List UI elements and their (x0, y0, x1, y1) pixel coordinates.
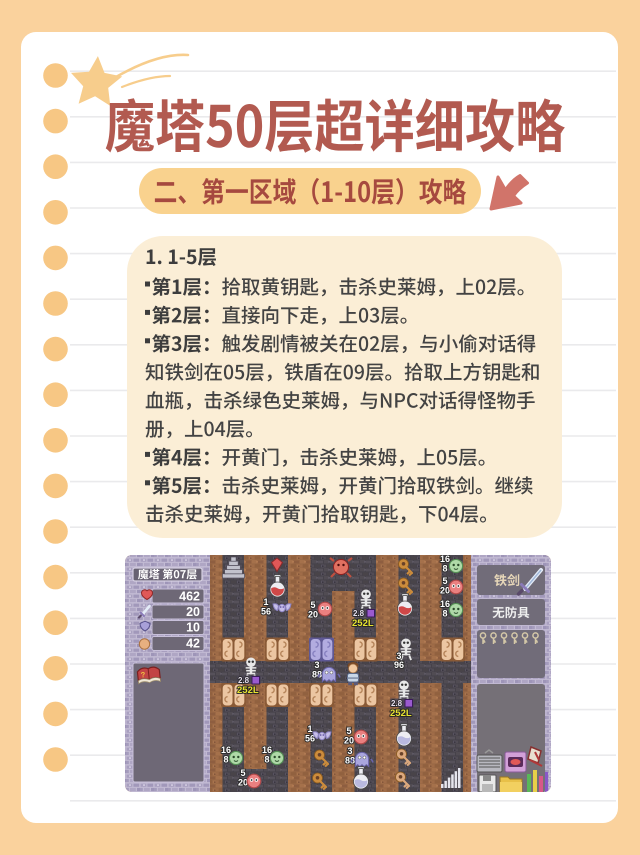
svg-text:252L: 252L (390, 708, 412, 719)
svg-text:5: 5 (442, 576, 447, 586)
svg-text:10: 10 (186, 621, 200, 635)
svg-text:2.8: 2.8 (391, 699, 403, 708)
svg-text:1: 1 (307, 724, 312, 734)
svg-text:2.8: 2.8 (238, 676, 250, 685)
svg-text:96: 96 (394, 660, 404, 670)
svg-text:462: 462 (179, 590, 200, 604)
svg-text:16: 16 (221, 745, 231, 755)
svg-text:2.8: 2.8 (353, 609, 365, 618)
svg-text:20: 20 (440, 586, 450, 596)
svg-text:8: 8 (223, 755, 228, 765)
svg-text:16: 16 (440, 554, 450, 564)
svg-text:8: 8 (442, 564, 447, 574)
svg-text:20: 20 (344, 736, 354, 746)
svg-text:56: 56 (261, 607, 271, 617)
svg-text:8: 8 (442, 609, 447, 619)
svg-text:42: 42 (186, 637, 200, 651)
svg-text:3: 3 (314, 660, 319, 670)
svg-text:8: 8 (264, 755, 269, 765)
svg-text:16: 16 (440, 599, 450, 609)
svg-text:3: 3 (347, 746, 352, 756)
svg-text:20: 20 (308, 610, 318, 620)
svg-text:88: 88 (345, 756, 355, 766)
svg-text:5: 5 (240, 768, 245, 778)
svg-text:20: 20 (186, 605, 200, 619)
svg-text:5: 5 (310, 600, 315, 610)
svg-text:252L: 252L (237, 685, 259, 696)
svg-text:16: 16 (262, 745, 272, 755)
svg-text:1: 1 (263, 597, 268, 607)
svg-text:5: 5 (346, 726, 351, 736)
svg-text:20: 20 (238, 778, 248, 788)
svg-text:252L: 252L (352, 618, 374, 629)
